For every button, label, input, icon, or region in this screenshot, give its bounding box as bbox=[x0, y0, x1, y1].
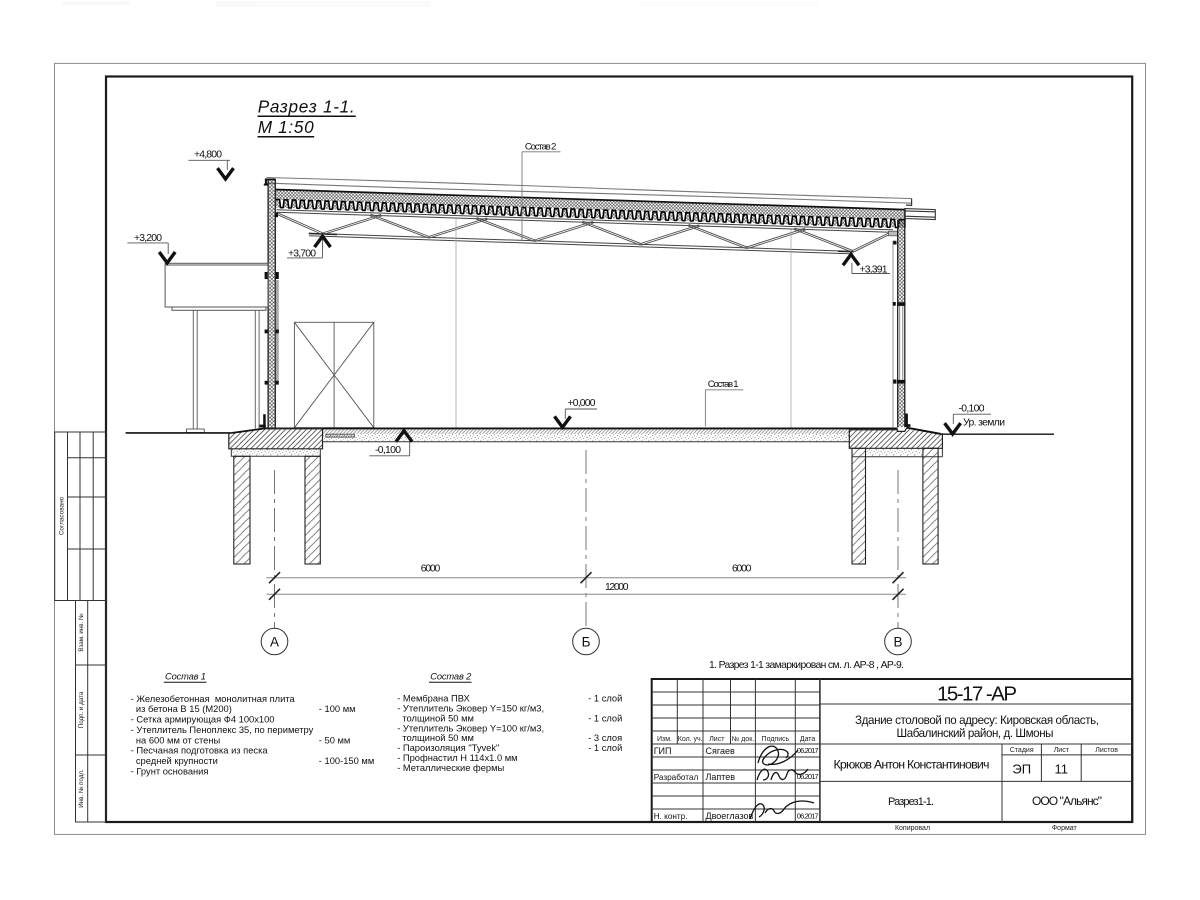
svg-text:06.2017: 06.2017 bbox=[797, 746, 819, 755]
svg-text:- Утеплитель Эковер Y=150 кг/м: - Утеплитель Эковер Y=150 кг/м3, bbox=[397, 703, 544, 713]
svg-text:В: В bbox=[893, 634, 902, 649]
svg-text:- Железобетонная монолитная п: - Железобетонная монолитная плита bbox=[131, 694, 296, 704]
svg-text:- Грунт основания: - Грунт основания bbox=[131, 766, 209, 776]
svg-text:06.2017: 06.2017 bbox=[797, 811, 819, 820]
svg-text:- 1 слой: - 1 слой bbox=[588, 713, 622, 723]
svg-text:Взам. инв. №: Взам. инв. № bbox=[78, 613, 85, 652]
svg-text:толщиной 50 мм: толщиной 50 мм bbox=[397, 713, 474, 723]
svg-text:- 100-150 мм: - 100-150 мм bbox=[319, 756, 374, 766]
svg-text:Состав 2: Состав 2 bbox=[430, 672, 472, 682]
svg-text:Двоеглазов: Двоеглазов bbox=[706, 811, 754, 821]
svg-text:Согласовано: Согласовано bbox=[59, 496, 66, 535]
svg-text:1. Разрез 1-1 замаркирован см.: 1. Разрез 1-1 замаркирован см. л. АР-8 ,… bbox=[709, 660, 904, 671]
svg-text:Здание столовой по адресу: Кир: Здание столовой по адресу: Кировская обл… bbox=[855, 714, 1099, 727]
svg-text:Подп. и дата: Подп. и дата bbox=[78, 691, 85, 728]
svg-text:Инв. № подл.: Инв. № подл. bbox=[78, 769, 85, 808]
svg-text:- Пароизоляция "Tyvek": - Пароизоляция "Tyvek" bbox=[397, 743, 499, 753]
svg-text:толщиной 50 мм: толщиной 50 мм bbox=[397, 733, 474, 743]
svg-text:- Профнастил Н 114х1.0 мм: - Профнастил Н 114х1.0 мм bbox=[397, 753, 517, 763]
svg-text:15-17 -АР: 15-17 -АР bbox=[937, 683, 1017, 706]
svg-text:6000: 6000 bbox=[421, 564, 441, 575]
svg-text:06.2017: 06.2017 bbox=[797, 772, 819, 781]
svg-text:Изм.: Изм. bbox=[657, 736, 672, 743]
svg-text:средней крупности: средней крупности bbox=[131, 756, 218, 766]
svg-text:Разрез1-1.: Разрез1-1. bbox=[888, 796, 934, 808]
svg-text:М 1:50: М 1:50 bbox=[258, 117, 314, 137]
svg-text:Листов: Листов bbox=[1095, 747, 1118, 754]
svg-text:Шабалинский район, д. Шмоны: Шабалинский район, д. Шмоны bbox=[897, 727, 1054, 740]
svg-text:из бетона В 15 (М200): из бетона В 15 (М200) bbox=[131, 704, 232, 714]
svg-text:-0,100: -0,100 bbox=[375, 445, 401, 456]
svg-text:ООО "Альянс": ООО "Альянс" bbox=[1032, 794, 1102, 808]
svg-text:Разрез 1-1.: Разрез 1-1. bbox=[258, 97, 355, 117]
svg-text:+4,800: +4,800 bbox=[194, 150, 222, 161]
svg-text:6000: 6000 bbox=[732, 564, 752, 575]
svg-text:Разработал: Разработал bbox=[654, 773, 699, 782]
svg-text:Формат: Формат bbox=[1052, 825, 1078, 832]
svg-text:Дата: Дата bbox=[800, 736, 816, 743]
svg-text:Стадия: Стадия bbox=[1010, 747, 1034, 754]
svg-text:+3,200: +3,200 bbox=[134, 233, 162, 244]
svg-text:ГИП: ГИП bbox=[654, 746, 672, 756]
svg-text:- Утеплитель Эковер Y=100 кг/м: - Утеплитель Эковер Y=100 кг/м3, bbox=[397, 723, 544, 733]
svg-text:Лист: Лист bbox=[1054, 747, 1070, 754]
svg-text:- 1 слой: - 1 слой bbox=[588, 743, 622, 753]
svg-text:Сягаев: Сягаев bbox=[706, 746, 735, 756]
svg-text:Состав 2: Состав 2 bbox=[525, 142, 557, 153]
svg-text:Лаптев: Лаптев bbox=[706, 772, 736, 782]
svg-text:-0,100: -0,100 bbox=[959, 404, 985, 415]
svg-text:Состав 1: Состав 1 bbox=[165, 672, 206, 682]
svg-text:Лист: Лист bbox=[709, 736, 725, 743]
svg-text:Копировал: Копировал bbox=[895, 825, 930, 832]
svg-text:ЭП: ЭП bbox=[1012, 762, 1031, 777]
svg-text:№ док.: № док. bbox=[732, 736, 754, 743]
svg-text:- Сетка армирующая Ф4 100х100: - Сетка армирующая Ф4 100х100 bbox=[131, 715, 275, 725]
svg-text:+0,000: +0,000 bbox=[568, 398, 596, 409]
svg-text:Н. контр.: Н. контр. bbox=[654, 812, 688, 821]
svg-text:Кол. уч.: Кол. уч. bbox=[678, 736, 703, 743]
svg-text:- Мембрана ПВХ: - Мембрана ПВХ bbox=[397, 693, 470, 703]
svg-text:А: А bbox=[270, 634, 279, 649]
svg-text:11: 11 bbox=[1055, 762, 1069, 777]
svg-text:- 100 мм: - 100 мм bbox=[319, 704, 356, 714]
svg-text:- 1 слой: - 1 слой bbox=[588, 693, 622, 703]
svg-text:Состав 1: Состав 1 bbox=[708, 379, 739, 390]
svg-text:- 50 мм: - 50 мм bbox=[319, 735, 351, 745]
svg-text:- Песчаная подготовка из песка: - Песчаная подготовка из песка bbox=[131, 746, 269, 756]
svg-text:на 600 мм от стены: на 600 мм от стены bbox=[131, 735, 221, 745]
svg-text:- 3 слоя: - 3 слоя bbox=[588, 733, 622, 743]
svg-text:Подпись: Подпись bbox=[762, 736, 790, 743]
svg-text:- Металлические фермы: - Металлические фермы bbox=[397, 763, 504, 773]
svg-text:12000: 12000 bbox=[605, 582, 629, 593]
svg-text:- Утеплитель Пеноплекс 35, по: - Утеплитель Пеноплекс 35, по периметру bbox=[131, 725, 314, 735]
svg-text:Крюков Антон Константинович: Крюков Антон Константинович bbox=[834, 757, 990, 771]
svg-text:Ур. земли: Ур. земли bbox=[963, 418, 1005, 429]
svg-text:Б: Б bbox=[582, 634, 591, 649]
